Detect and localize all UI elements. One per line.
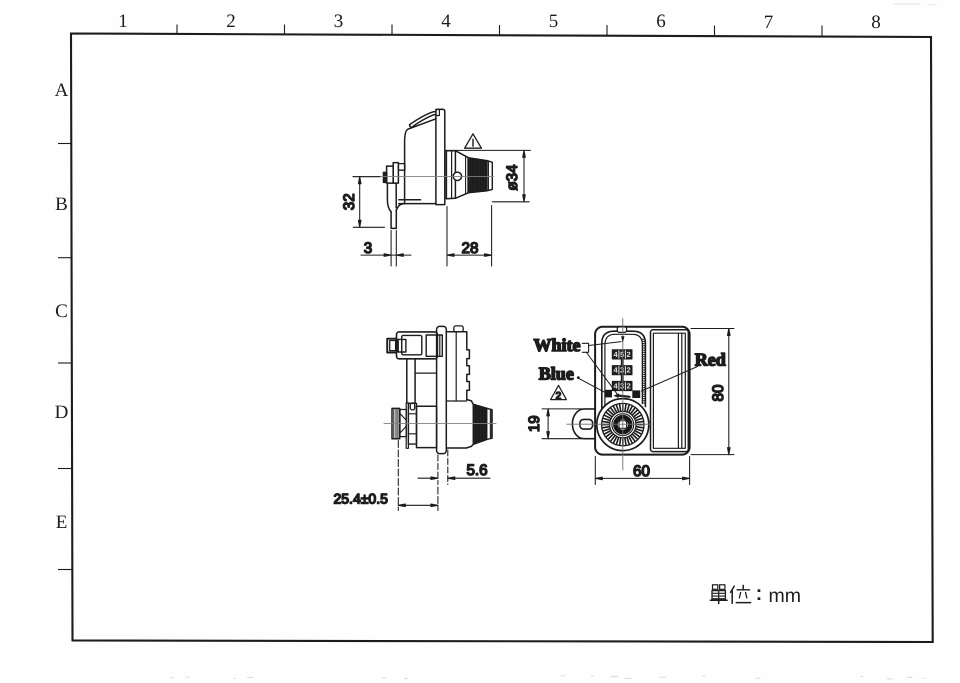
svg-text:2: 2 bbox=[556, 391, 562, 402]
svg-text:B: B bbox=[55, 194, 68, 215]
svg-text:60: 60 bbox=[633, 463, 650, 480]
svg-text:25.4±0.5: 25.4±0.5 bbox=[333, 490, 388, 506]
svg-text:Blue: Blue bbox=[539, 364, 574, 384]
svg-text:4: 4 bbox=[441, 11, 451, 32]
svg-text:2: 2 bbox=[226, 11, 236, 32]
svg-text:6: 6 bbox=[656, 11, 666, 32]
svg-text:E: E bbox=[56, 512, 68, 533]
svg-text:5: 5 bbox=[620, 350, 624, 359]
svg-text:19: 19 bbox=[526, 415, 543, 432]
svg-text:5.6: 5.6 bbox=[466, 462, 487, 479]
svg-text:1: 1 bbox=[118, 11, 128, 32]
svg-text:C: C bbox=[55, 301, 68, 322]
svg-text:3: 3 bbox=[334, 11, 344, 32]
svg-text:7: 7 bbox=[764, 12, 774, 33]
svg-text:80: 80 bbox=[710, 385, 727, 402]
svg-text:28: 28 bbox=[462, 240, 479, 257]
svg-text:2: 2 bbox=[627, 366, 631, 375]
svg-text:D: D bbox=[55, 402, 69, 423]
svg-text:2: 2 bbox=[627, 382, 631, 391]
svg-text:3: 3 bbox=[620, 366, 624, 375]
svg-text:3: 3 bbox=[620, 382, 624, 391]
svg-text:3: 3 bbox=[364, 240, 372, 257]
svg-text:8: 8 bbox=[871, 12, 881, 33]
svg-text:32: 32 bbox=[341, 193, 358, 210]
svg-text:White: White bbox=[534, 335, 581, 355]
svg-text:ø34: ø34 bbox=[504, 164, 521, 190]
svg-text:Red: Red bbox=[695, 349, 726, 369]
svg-text:5: 5 bbox=[549, 11, 559, 32]
svg-text:mm: mm bbox=[769, 585, 802, 607]
svg-text:2: 2 bbox=[627, 350, 631, 359]
svg-text:A: A bbox=[55, 80, 69, 101]
